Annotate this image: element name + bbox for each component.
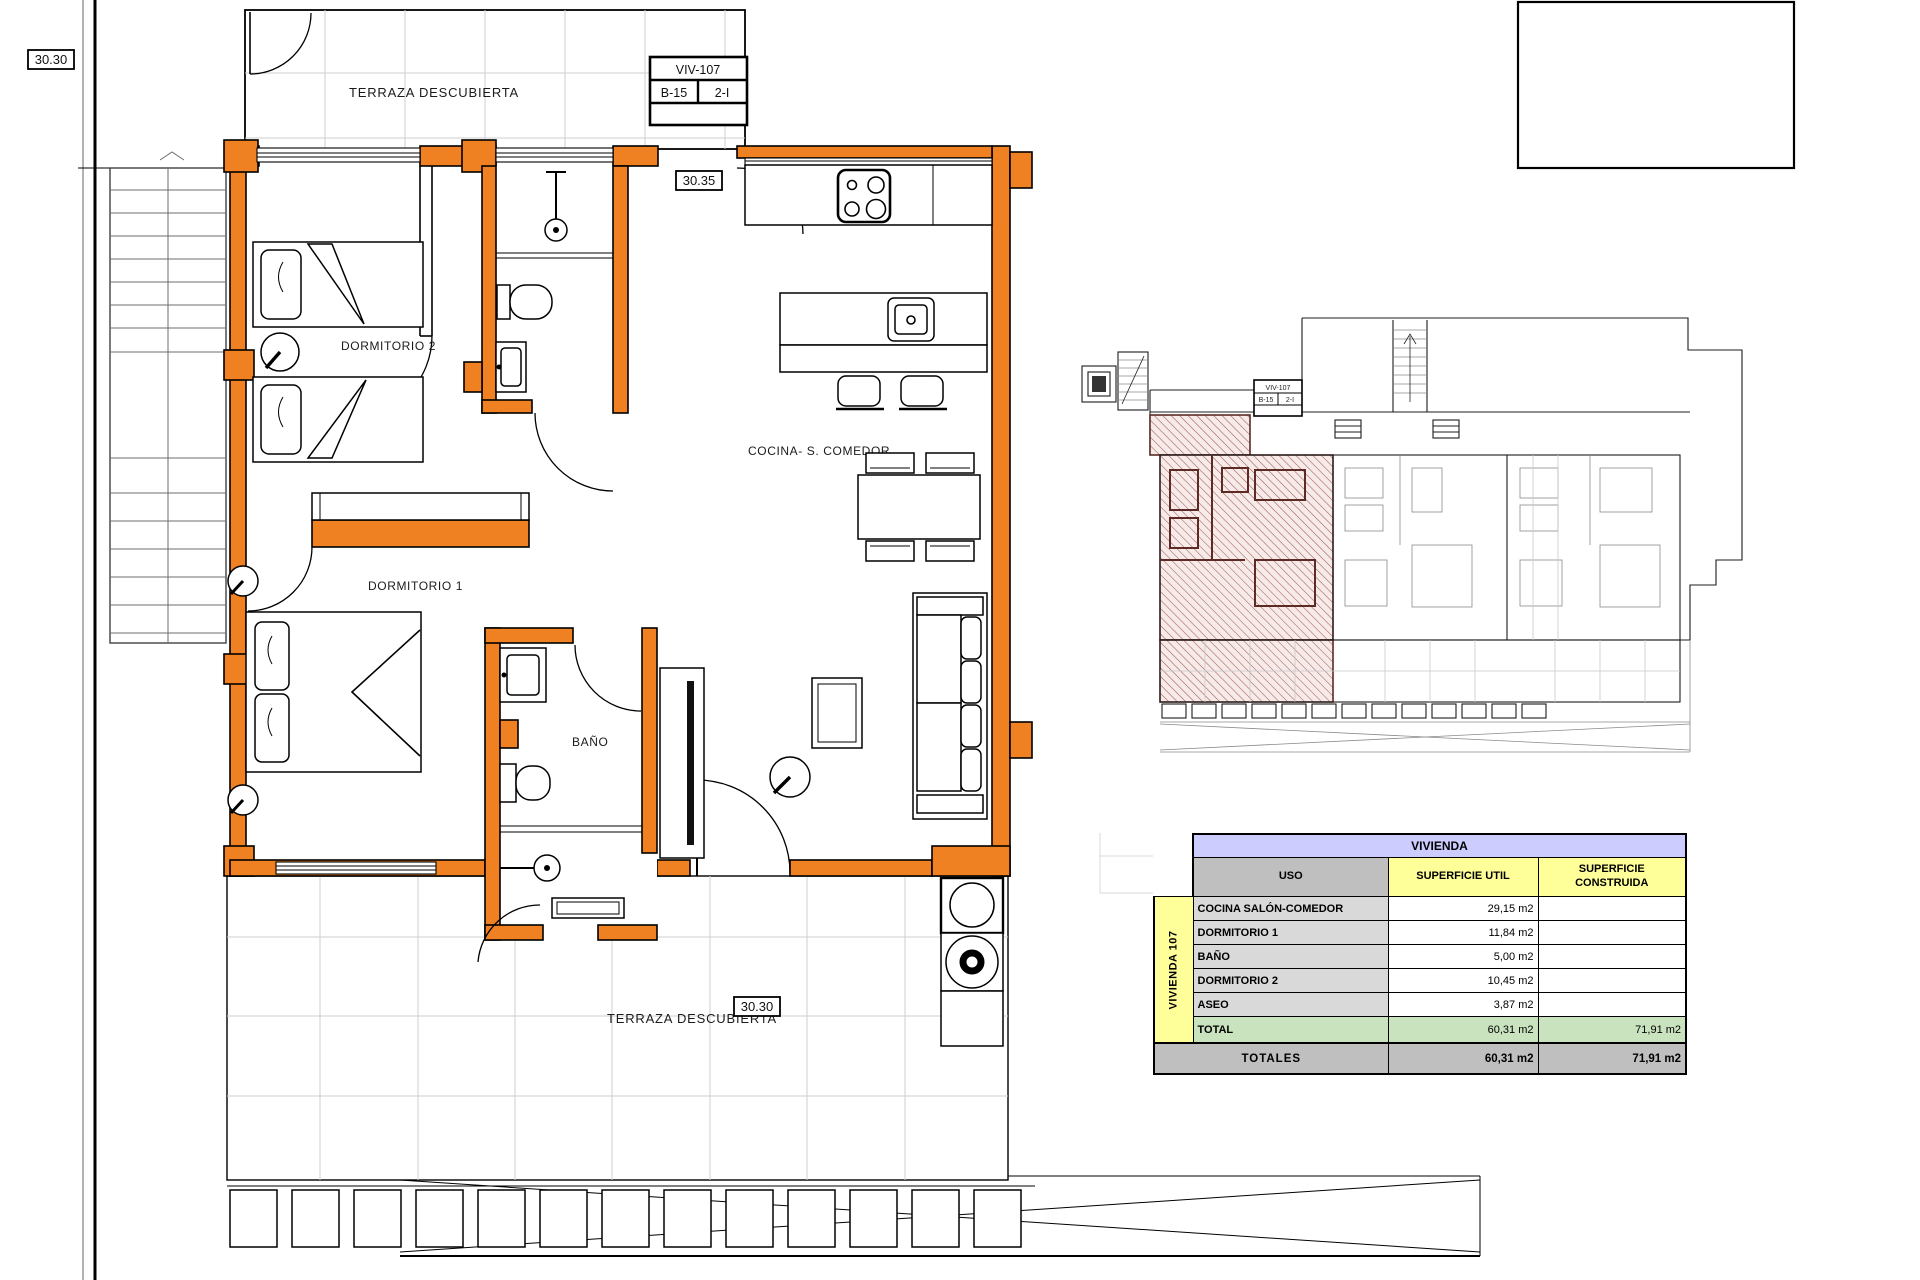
title-block-unit: VIV-107 bbox=[676, 63, 721, 77]
bathroom-label: BAÑO bbox=[572, 735, 608, 749]
row-use: COCINA SALÓN-COMEDOR bbox=[1193, 897, 1388, 921]
ghost-cell bbox=[1154, 858, 1193, 897]
overview-title-unit: VIV-107 bbox=[1266, 385, 1291, 392]
dining-table bbox=[858, 453, 980, 561]
table-row: ASEO 3,87 m2 bbox=[1154, 993, 1686, 1017]
sink bbox=[500, 648, 546, 702]
col-header-superficie-construida: SUPERFICIE CONSTRUIDA bbox=[1538, 858, 1686, 897]
row-use: ASEO bbox=[1193, 993, 1388, 1017]
col-header-uso: USO bbox=[1193, 858, 1388, 897]
row-built bbox=[1538, 969, 1686, 993]
table-title-row: VIVIENDA bbox=[1154, 834, 1686, 858]
total-label: TOTAL bbox=[1193, 1017, 1388, 1044]
bed-single-2 bbox=[253, 377, 423, 462]
outdoor-kitchen bbox=[941, 878, 1003, 1046]
row-built bbox=[1538, 993, 1686, 1017]
slat-row-bottom bbox=[227, 1186, 1035, 1247]
entry-door-bottom bbox=[697, 780, 790, 876]
row-useful: 5,00 m2 bbox=[1388, 945, 1538, 969]
overview-stairs-left bbox=[1118, 352, 1148, 410]
row-built bbox=[1538, 945, 1686, 969]
row-useful: 10,45 m2 bbox=[1388, 969, 1538, 993]
side-table bbox=[812, 678, 862, 748]
title-block-block: B-15 bbox=[661, 86, 687, 100]
col-header-superficie-util: SUPERFICIE UTIL bbox=[1388, 858, 1538, 897]
bedroom1: DORMITORIO 1 bbox=[228, 566, 463, 815]
total-built: 71,91 m2 bbox=[1538, 1017, 1686, 1044]
overview-plan: VIV-107 B-15 2-I bbox=[1082, 318, 1742, 752]
aseo-door-arc bbox=[535, 413, 613, 491]
divider-closet bbox=[248, 493, 529, 611]
row-use: DORMITORIO 2 bbox=[1193, 969, 1388, 993]
table-row: BAÑO 5,00 m2 bbox=[1154, 945, 1686, 969]
dim-label-top-left: 30.30 bbox=[28, 50, 74, 69]
totals-built: 71,91 m2 bbox=[1538, 1043, 1686, 1074]
title-block-tier: 2-I bbox=[715, 86, 730, 100]
aseo bbox=[464, 166, 628, 491]
group-label: VIVIENDA 107 bbox=[1168, 930, 1180, 1009]
toilet bbox=[497, 285, 552, 319]
spreadsheet-gridlines bbox=[1100, 833, 1153, 893]
overview-info-box bbox=[1335, 420, 1459, 438]
nightstand-lamp bbox=[261, 333, 299, 371]
totals-useful: 60,31 m2 bbox=[1388, 1043, 1538, 1074]
overview-title-tier: 2-I bbox=[1286, 397, 1294, 404]
table-total-row: TOTAL 60,31 m2 71,91 m2 bbox=[1154, 1017, 1686, 1044]
area-table: VIVIENDA USO SUPERFICIE UTIL SUPERFICIE … bbox=[1153, 833, 1685, 1075]
table-row: VIVIENDA 107 COCINA SALÓN-COMEDOR 29,15 … bbox=[1154, 897, 1686, 921]
row-built bbox=[1538, 897, 1686, 921]
lamp-symbol bbox=[770, 757, 810, 797]
row-built bbox=[1538, 921, 1686, 945]
dim-label-entry: 30.35 bbox=[676, 171, 722, 190]
table-title: VIVIENDA bbox=[1193, 834, 1686, 858]
apartment-plan: 30.35 DORMI bbox=[224, 140, 1032, 962]
sheet-border bbox=[78, 0, 110, 1280]
dim-text: 30.30 bbox=[35, 52, 68, 67]
sliding-closet bbox=[660, 668, 704, 858]
table-row: DORMITORIO 2 10,45 m2 bbox=[1154, 969, 1686, 993]
table-header-row: USO SUPERFICIE UTIL SUPERFICIE CONSTRUID… bbox=[1154, 858, 1686, 897]
row-useful: 3,87 m2 bbox=[1388, 993, 1538, 1017]
row-use: DORMITORIO 1 bbox=[1193, 921, 1388, 945]
kitchen-counter bbox=[745, 165, 992, 225]
totals-label: TOTALES bbox=[1154, 1043, 1388, 1074]
overview-elevator bbox=[1082, 366, 1116, 402]
group-label-cell: VIVIENDA 107 bbox=[1154, 897, 1193, 1044]
dim-label-bottom: 30.30 bbox=[734, 997, 780, 1016]
bedroom2-label: DORMITORIO 2 bbox=[341, 339, 436, 353]
row-use: BAÑO bbox=[1193, 945, 1388, 969]
title-block: VIV-107 B-15 2-I bbox=[650, 57, 747, 125]
stool bbox=[901, 376, 943, 406]
dim-text: 30.30 bbox=[741, 999, 774, 1014]
floor-plan-canvas: 30.30 TERRAZA DESCUBIERTA bbox=[0, 0, 1920, 1280]
kitchen-living: COCINA- S. COMEDOR bbox=[697, 165, 992, 876]
overview-highlight-hatch bbox=[1150, 415, 1333, 702]
table-totals-row: TOTALES 60,31 m2 71,91 m2 bbox=[1154, 1043, 1686, 1074]
terrace-top-label: TERRAZA DESCUBIERTA bbox=[349, 85, 519, 100]
bedroom2: DORMITORIO 2 bbox=[253, 166, 436, 462]
stool bbox=[838, 376, 880, 406]
bedroom1-label: DORMITORIO 1 bbox=[368, 579, 463, 593]
row-useful: 11,84 m2 bbox=[1388, 921, 1538, 945]
stove bbox=[838, 170, 890, 222]
bed-single-1 bbox=[253, 242, 423, 327]
table-row: DORMITORIO 1 11,84 m2 bbox=[1154, 921, 1686, 945]
floorplan-sheet: { "labels": { "terrace_top": "TERRAZA DE… bbox=[0, 0, 1920, 1280]
bathroom: BAÑO bbox=[478, 628, 657, 962]
total-useful: 60,31 m2 bbox=[1388, 1017, 1538, 1044]
ghost-cell bbox=[1154, 834, 1193, 858]
toilet bbox=[500, 764, 550, 802]
sink bbox=[496, 342, 526, 392]
top-right-box bbox=[1518, 2, 1794, 168]
overview-title-block: VIV-107 B-15 2-I bbox=[1254, 380, 1302, 416]
overview-stairs-top bbox=[1393, 330, 1427, 402]
sofa bbox=[913, 593, 987, 819]
dim-text: 30.35 bbox=[683, 173, 716, 188]
overview-title-block-id: B-15 bbox=[1259, 397, 1274, 404]
row-useful: 29,15 m2 bbox=[1388, 897, 1538, 921]
stairs-left bbox=[110, 152, 226, 643]
kitchen-island bbox=[780, 293, 987, 409]
bed-double bbox=[246, 612, 421, 772]
